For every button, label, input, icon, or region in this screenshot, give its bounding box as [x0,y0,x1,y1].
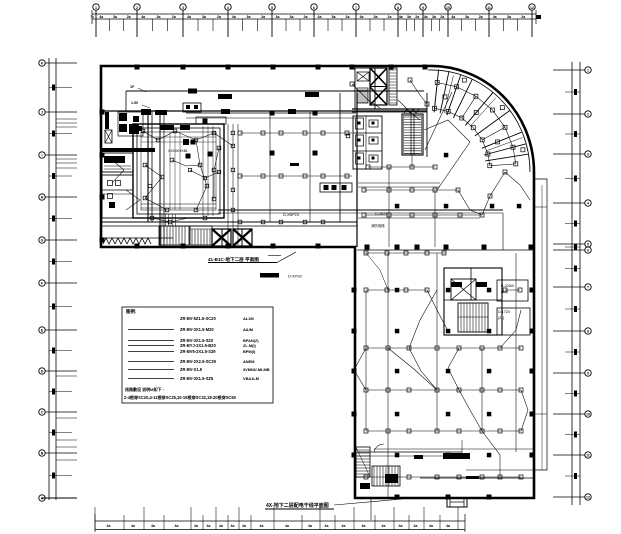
svg-text:D-XBP23: D-XBP23 [283,213,299,217]
svg-text:4a: 4a [151,524,155,528]
svg-text:4a: 4a [414,524,418,528]
svg-text:(Z1): (Z1) [498,316,504,320]
svg-text:D-17Z0: D-17Z0 [498,310,510,314]
svg-text:(ZX): (ZX) [501,290,508,294]
svg-text:AA/M: AA/M [243,327,253,332]
svg-text:ZL.M(I): ZL.M(I) [243,343,256,348]
svg-text:图例:: 图例: [126,308,137,315]
svg-text:3: 3 [587,153,589,157]
svg-text:G: G [41,239,44,243]
svg-text:8: 8 [397,6,399,10]
svg-text:10: 10 [446,6,450,10]
svg-text:10: 10 [586,413,590,417]
svg-text:ZR-BYJ-2X1.5-B20: ZR-BYJ-2X1.5-B20 [180,343,216,348]
svg-text:5: 5 [271,6,273,10]
svg-text:9: 9 [587,372,589,376]
svg-text:ANEM: ANEM [243,359,254,364]
svg-text:4a: 4a [131,524,135,528]
svg-text:5: 5 [587,243,589,247]
svg-text:4a: 4a [260,524,264,528]
svg-text:1: 1 [95,6,97,10]
svg-text:4a: 4a [242,524,246,528]
svg-text:ZR-BV-X1.5: ZR-BV-X1.5 [180,367,203,372]
svg-text:B: B [41,452,44,456]
svg-text:2: 2 [587,113,589,117]
svg-text:ZR-BV-3X1.5-SZ5: ZR-BV-3X1.5-SZ5 [180,376,214,381]
svg-text:J: J [41,111,43,115]
svg-text:B-20A0I: B-20A0I [501,284,514,288]
svg-text:4a: 4a [285,524,289,528]
svg-text:4a: 4a [207,524,211,528]
svg-text:ZR-BV-3X1.5-M20: ZR-BV-3X1.5-M20 [180,327,214,332]
svg-text:线路敷设 说明M如下 :: 线路敷设 说明M如下 : [125,386,164,392]
svg-text:3VMNU-MLMB: 3VMNU-MLMB [243,367,270,372]
svg-text:BPM(I): BPM(I) [243,349,256,354]
svg-text:H: H [41,196,44,200]
svg-text:消防电梯: 消防电梯 [371,223,385,228]
svg-text:1.50: 1.50 [131,101,138,105]
svg-text:C: C [41,411,44,415]
svg-text:D: D [41,370,44,374]
svg-text:D-XB23: D-XB23 [375,212,387,216]
svg-text:4a: 4a [231,524,235,528]
svg-text:XXNXHXBL: XXNXHXBL [168,149,188,153]
svg-text:I: I [42,154,43,158]
svg-text:2: 2 [136,6,138,10]
svg-text:11: 11 [586,454,590,458]
svg-text:D-XPS0: D-XPS0 [288,275,302,279]
svg-text:6: 6 [313,6,315,10]
svg-text:ZR-BV5-2X1.5-S29: ZR-BV5-2X1.5-S29 [180,349,216,354]
svg-text:4: 4 [587,202,589,206]
svg-text:7: 7 [587,286,589,290]
svg-text:4a: 4a [219,524,223,528]
svg-text:4a: 4a [107,524,111,528]
svg-text:4a: 4a [429,524,433,528]
svg-text:7a: 7a [90,15,94,19]
svg-text:41-B1C-地下二层 平面图: 41-B1C-地下二层 平面图 [208,256,259,263]
svg-text:2-4根穿SC20,4-11根穿SC25,10-16根穿SC: 2-4根穿SC20,4-11根穿SC25,10-16根穿SC32,18-20根穿… [124,394,237,400]
svg-text:K: K [41,62,44,66]
svg-text:11: 11 [487,6,491,10]
svg-text:4a: 4a [362,524,366,528]
svg-text:4a: 4a [308,524,312,528]
svg-text:12: 12 [530,6,534,10]
svg-text:7: 7 [355,6,357,10]
svg-text:9: 9 [422,6,424,10]
svg-text:AL1M: AL1M [243,316,254,321]
svg-text:ZR-BV-2X2.5-SC29: ZR-BV-2X2.5-SC29 [180,359,217,364]
svg-text:4a: 4a [399,524,403,528]
svg-text:4X-地下二层配电干线平面图: 4X-地下二层配电干线平面图 [266,502,329,509]
svg-text:6: 6 [587,249,589,253]
svg-text:1: 1 [587,69,589,73]
svg-text:4a: 4a [194,524,198,528]
svg-text:4a: 4a [446,524,450,528]
svg-text:12: 12 [586,496,590,500]
svg-text:3: 3 [182,6,184,10]
svg-text:VBA1LM: VBA1LM [243,376,259,381]
svg-text:4a: 4a [175,524,179,528]
svg-text:4a: 4a [342,524,346,528]
svg-text:8: 8 [587,330,589,334]
svg-text:4: 4 [227,6,229,10]
svg-text:4a: 4a [382,524,386,528]
svg-text:ZR-BV-5Z1.5-SC20: ZR-BV-5Z1.5-SC20 [180,316,216,321]
svg-text:4a: 4a [325,524,329,528]
